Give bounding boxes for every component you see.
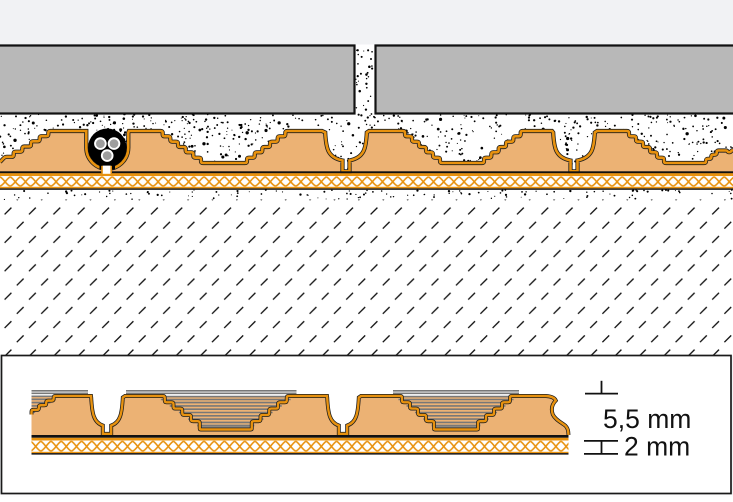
svg-text:5,5 mm: 5,5 mm [603, 404, 691, 434]
svg-text:2 mm: 2 mm [624, 432, 690, 462]
